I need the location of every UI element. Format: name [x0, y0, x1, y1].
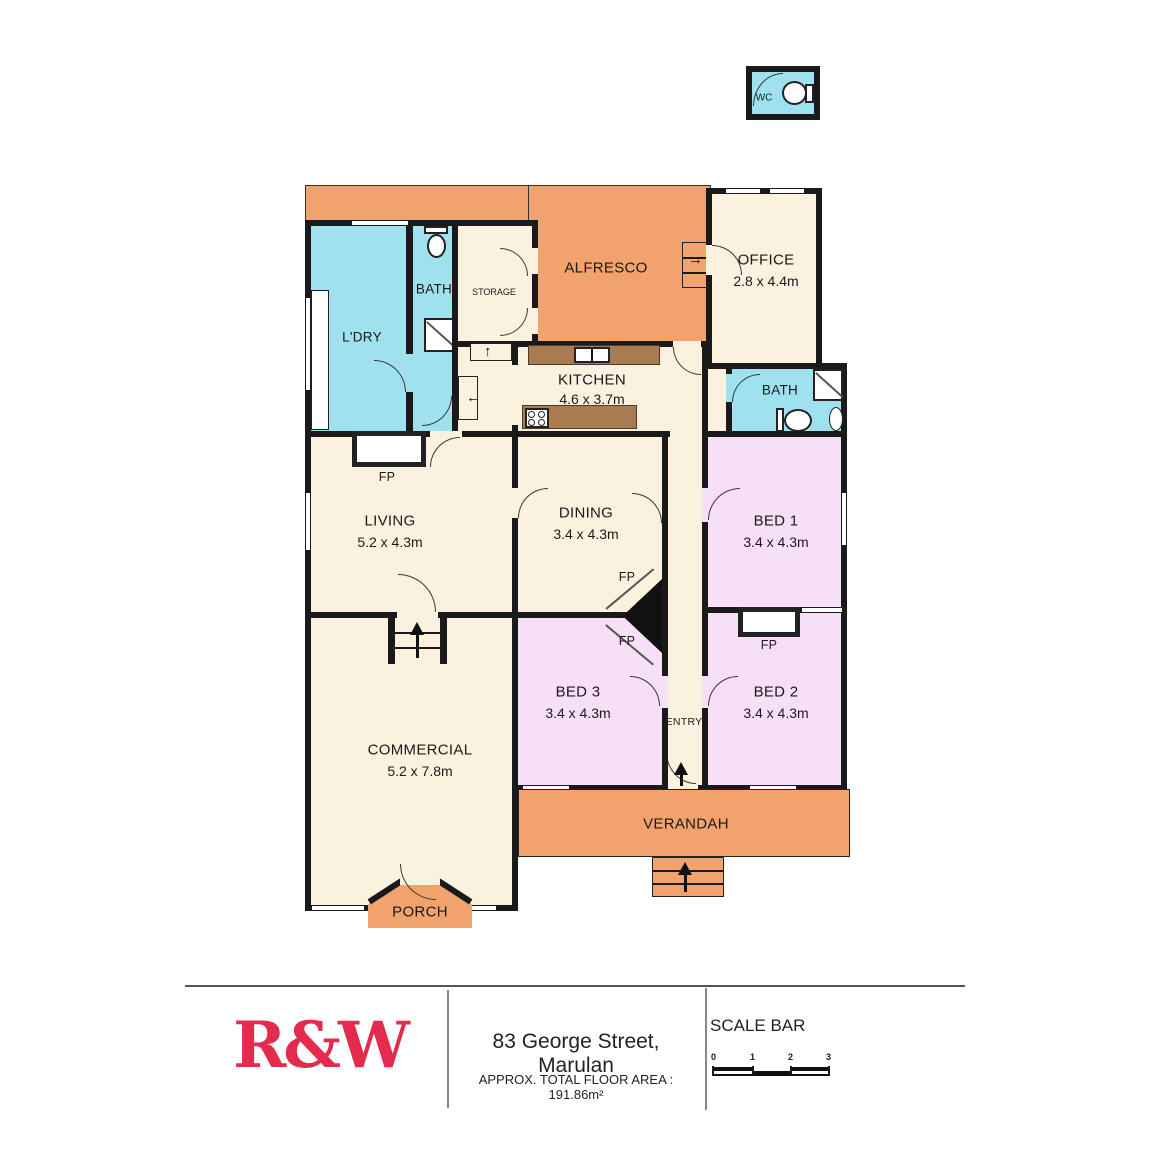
scale-tick-1: 1	[750, 1052, 755, 1062]
toilet-cistern-icon	[805, 84, 814, 103]
burner-icon	[528, 411, 535, 418]
room-label-bed2: BED 2	[754, 684, 799, 701]
room-dims-bed1: 3.4 x 4.3m	[743, 534, 808, 550]
toilet-icon	[427, 234, 446, 258]
entry-arrow-stem	[680, 774, 683, 786]
stairs-arrow-stem	[416, 634, 419, 658]
bath-right-door-gap	[726, 374, 732, 402]
burner-icon	[538, 419, 545, 426]
scale-tick-3: 3	[826, 1052, 831, 1062]
storage-door-gap	[532, 308, 538, 334]
room-label-bath-upper: BATH	[416, 282, 452, 297]
scale-bar-title: SCALE BAR	[710, 1016, 805, 1036]
footer-vertical-divider	[705, 988, 707, 1110]
window	[352, 220, 408, 226]
footer-vertical-divider	[447, 990, 449, 1108]
room-label-bath-right: BATH	[762, 383, 798, 398]
stair-wall	[388, 618, 395, 664]
room-label-dining: DINING	[559, 505, 613, 522]
fp-label: FP	[761, 638, 778, 652]
room-label-commercial: COMMERCIAL	[368, 742, 473, 759]
wall-ldry-bath	[406, 226, 413, 354]
arrow-right-icon: →	[688, 252, 703, 267]
room-label-bed1: BED 1	[754, 513, 799, 530]
room-label-alfresco: ALFRESCO	[564, 260, 647, 277]
room-dims-kitchen: 4.6 x 3.7m	[559, 391, 624, 407]
scale-tick-mark	[790, 1066, 792, 1075]
verandah-arrow-stem	[684, 874, 687, 892]
window	[726, 188, 760, 194]
stair-wall	[440, 618, 447, 664]
basin-icon	[829, 407, 843, 431]
scale-bar: 0 1 2 3	[712, 1052, 830, 1078]
room-dining	[512, 431, 668, 618]
scale-segment	[790, 1067, 830, 1071]
room-dims-bed3: 3.4 x 4.3m	[545, 705, 610, 721]
fp-label: FP	[619, 634, 636, 648]
room-label-office: OFFICE	[738, 252, 795, 269]
step-line	[683, 272, 707, 274]
bed3-door-gap	[662, 676, 668, 708]
toilet-cistern-icon	[424, 226, 448, 234]
dining-door-gap	[512, 488, 518, 518]
room-storage	[452, 220, 538, 347]
window	[305, 493, 311, 550]
room-label-bed3: BED 3	[556, 684, 601, 701]
room-label-verandah: VERANDAH	[643, 816, 729, 833]
floor-area-note: APPROX. TOTAL FLOOR AREA : 191.86m²	[455, 1072, 697, 1102]
room-dims-living: 5.2 x 4.3m	[357, 534, 422, 550]
scale-tick-mark	[752, 1066, 754, 1075]
commercial-door-gap	[397, 612, 438, 618]
room-dims-commercial: 5.2 x 7.8m	[387, 763, 452, 779]
room-label-living: LIVING	[365, 513, 416, 530]
step-line	[653, 883, 723, 885]
scale-tick-mark	[828, 1066, 830, 1075]
scale-tick-2: 2	[788, 1052, 793, 1062]
scale-segment	[752, 1071, 790, 1075]
hall-top-open	[670, 431, 702, 437]
storage-door-gap	[532, 248, 538, 274]
toilet-icon	[782, 81, 807, 105]
arrow-up-icon: ↑	[484, 344, 492, 359]
fireplace-bed2	[738, 607, 800, 637]
toilet-cistern-icon	[776, 408, 784, 432]
fireplace-living	[352, 431, 426, 467]
room-label-kitchen: KITCHEN	[558, 372, 626, 389]
window	[841, 493, 847, 545]
footer-divider	[185, 985, 965, 987]
laundry-bench	[311, 290, 329, 430]
kitchen-hall-open	[512, 365, 518, 425]
agency-logo: R&W	[230, 1008, 410, 1083]
fp-label: FP	[379, 470, 396, 484]
room-label-entry: ENTRY	[666, 716, 703, 728]
fp-label: FP	[619, 570, 636, 584]
room-dims-office: 2.8 x 4.4m	[733, 273, 798, 289]
window	[770, 188, 804, 194]
toilet-icon	[784, 409, 812, 432]
room-label-storage: STORAGE	[472, 287, 516, 297]
window	[802, 607, 842, 613]
sink-divider	[591, 349, 593, 361]
floorplan-page: WC ALFRESCO → OFFICE 2.8 x 4.4m L'DRY BA…	[0, 0, 1150, 1150]
scale-segment	[712, 1067, 752, 1071]
room-label-wc: WC	[756, 93, 773, 104]
burner-icon	[528, 419, 535, 426]
property-address: 83 George Street, Marulan	[455, 1030, 697, 1078]
room-dims-bed2: 3.4 x 4.3m	[743, 705, 808, 721]
scale-tick-0: 0	[711, 1052, 716, 1062]
room-dims-dining: 3.4 x 4.3m	[553, 526, 618, 542]
scale-tick-mark	[712, 1066, 714, 1075]
room-label-ldry: L'DRY	[342, 330, 382, 345]
wall-ldry-bath	[406, 392, 413, 432]
window	[312, 905, 364, 911]
arrow-left-icon: ←	[466, 390, 481, 405]
room-label-porch: PORCH	[392, 904, 448, 921]
hall-filler	[708, 369, 728, 437]
burner-icon	[538, 411, 545, 418]
